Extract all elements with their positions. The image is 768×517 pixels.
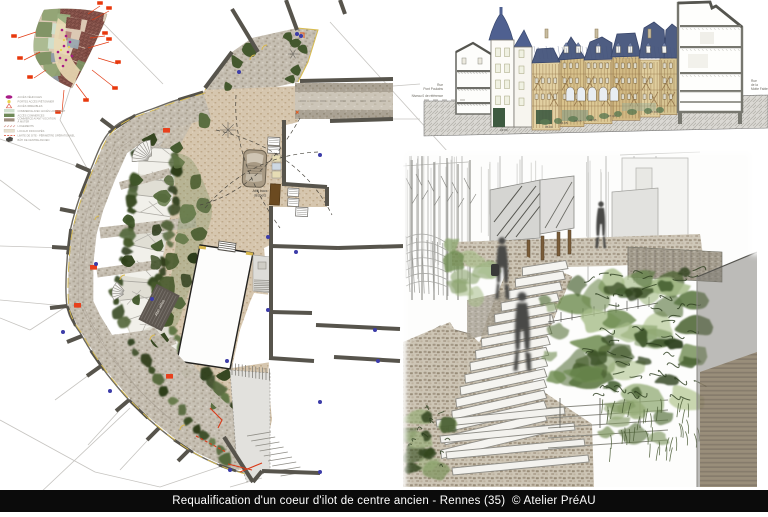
svg-text:Motte Fablet: Motte Fablet: [751, 87, 768, 91]
svg-text:Niveau 0 de référence: Niveau 0 de référence: [412, 94, 444, 98]
svg-text:36.15: 36.15: [574, 119, 582, 123]
svg-text:COMMERCE AVEC ACCÈS LOGEMENT: COMMERCE AVEC ACCÈS LOGEMENT: [18, 108, 66, 113]
svg-text:37.80: 37.80: [650, 110, 658, 114]
svg-text:36.65: 36.65: [589, 118, 597, 122]
svg-text:LIMITE DE SITE - PÉRIMÈTRE OPÉ: LIMITE DE SITE - PÉRIMÈTRE OPÉRATIONNEL: [18, 132, 76, 137]
svg-text:ACCÈS IMMEUBLES: ACCÈS IMMEUBLES: [18, 103, 43, 108]
svg-text:À MUTER: À MUTER: [18, 119, 30, 123]
svg-text:Abri bacs: Abri bacs: [253, 189, 268, 193]
svg-text:LOCAUX INOCCUPÉS: LOCAUX INOCCUPÉS: [18, 128, 45, 133]
svg-text:37.30: 37.30: [608, 114, 616, 118]
svg-text:35.30: 35.30: [545, 125, 553, 129]
svg-text:déchets: déchets: [254, 193, 267, 197]
svg-text:ACCÈS VÉHICULES: ACCÈS VÉHICULES: [18, 94, 43, 99]
svg-text:34.65: 34.65: [560, 121, 568, 125]
svg-text:BÂTI DE CENTRE ANCIEN: BÂTI DE CENTRE ANCIEN: [18, 137, 50, 142]
svg-text:24.80: 24.80: [500, 128, 508, 132]
svg-text:PORTES ACCÈS PIÉTONNIER: PORTES ACCÈS PIÉTONNIER: [18, 99, 55, 104]
svg-text:LOGEMENTS: LOGEMENTS: [18, 124, 35, 128]
svg-text:Pont Poulains: Pont Poulains: [423, 87, 443, 91]
